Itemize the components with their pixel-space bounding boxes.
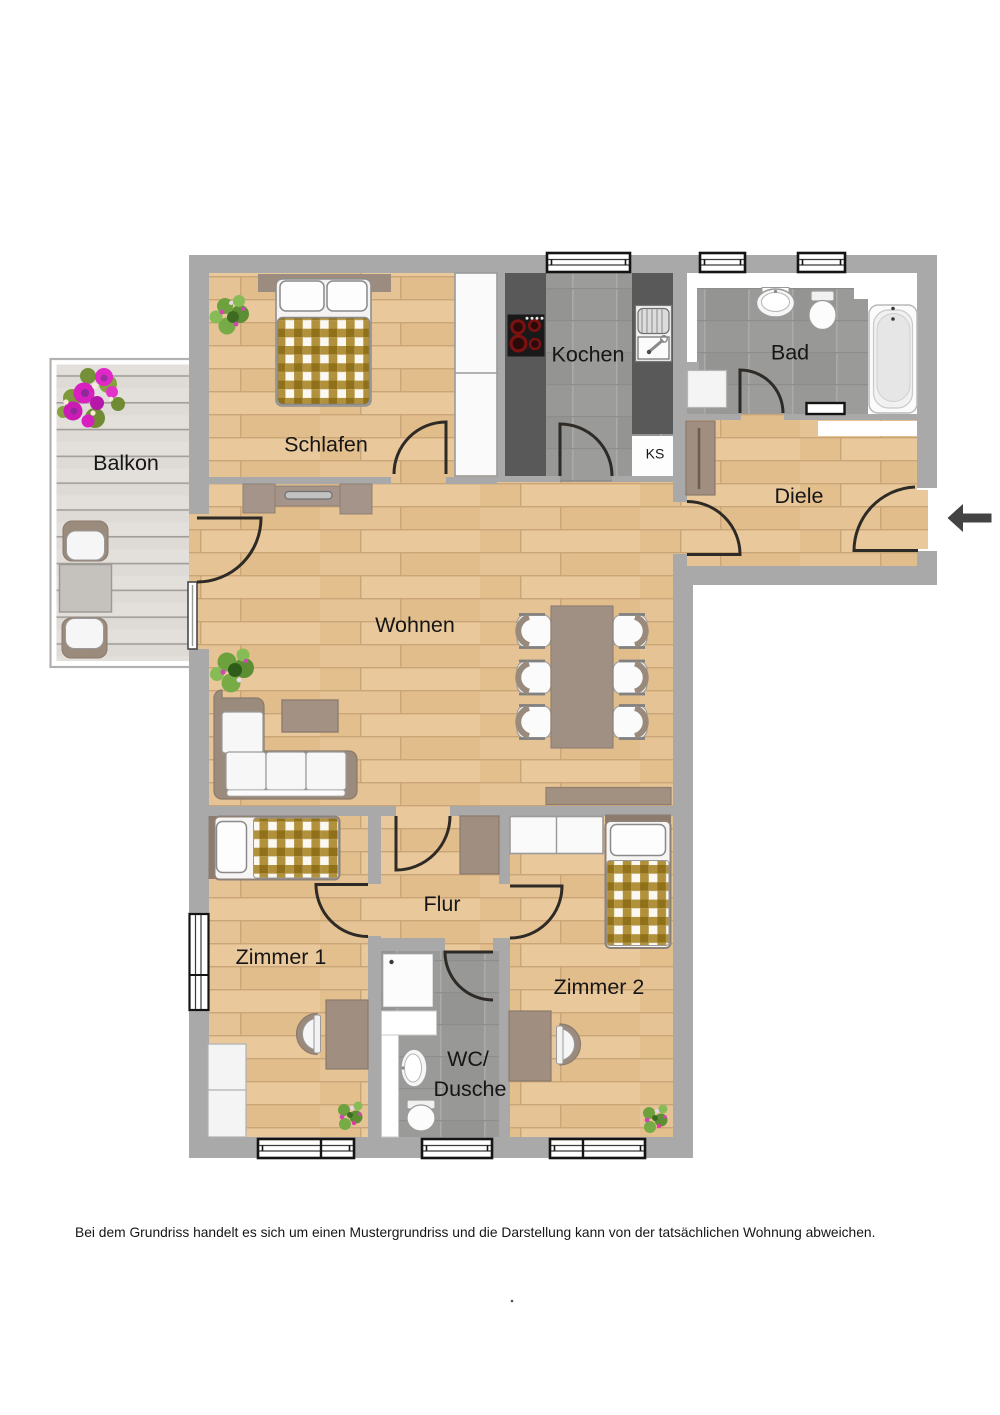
svg-text:Zimmer 2: Zimmer 2	[554, 975, 645, 999]
svg-text:KS: KS	[646, 446, 665, 462]
svg-text:Dusche: Dusche	[434, 1077, 507, 1101]
svg-text:Kochen: Kochen	[552, 343, 625, 367]
svg-text:Flur: Flur	[423, 892, 460, 916]
svg-text:Diele: Diele	[775, 484, 824, 508]
svg-text:Zimmer 1: Zimmer 1	[236, 945, 327, 969]
svg-text:Bad: Bad	[771, 341, 809, 365]
svg-text:Wohnen: Wohnen	[375, 613, 455, 637]
svg-text:Schlafen: Schlafen	[284, 433, 368, 457]
svg-text:Bei dem Grundriss handelt es s: Bei dem Grundriss handelt es sich um ein…	[75, 1225, 875, 1240]
svg-text:WC/: WC/	[447, 1047, 489, 1071]
svg-text:Balkon: Balkon	[93, 451, 159, 475]
